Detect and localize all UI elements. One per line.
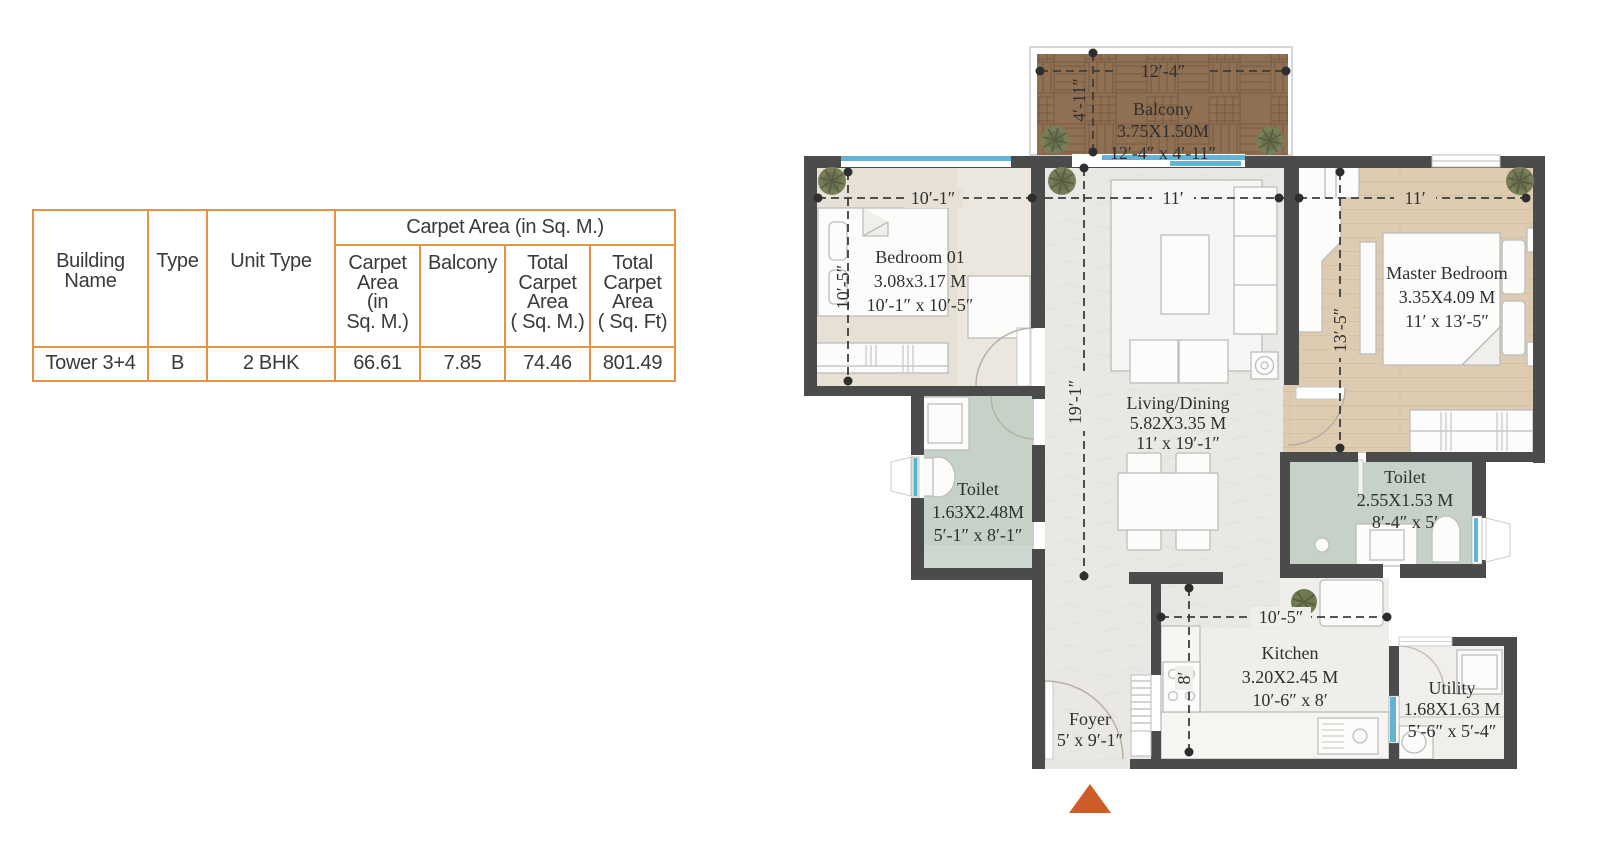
svg-text:3.20X2.45 M: 3.20X2.45 M <box>1242 667 1339 687</box>
svg-text:8′: 8′ <box>1174 671 1194 684</box>
svg-text:11′ x 13′-5″: 11′ x 13′-5″ <box>1405 311 1489 331</box>
svg-text:5′-1″ x 8′-1″: 5′-1″ x 8′-1″ <box>934 525 1023 545</box>
svg-text:3.75X1.50M: 3.75X1.50M <box>1117 121 1209 141</box>
svg-text:5′ x 9′-1″: 5′ x 9′-1″ <box>1057 730 1123 750</box>
svg-text:1.68X1.63 M: 1.68X1.63 M <box>1404 699 1501 719</box>
svg-text:5′-6″ x 5′-4″: 5′-6″ x 5′-4″ <box>1408 721 1497 741</box>
svg-text:2.55X1.53 M: 2.55X1.53 M <box>1357 490 1454 510</box>
svg-text:10′-1″: 10′-1″ <box>911 188 955 208</box>
svg-text:Foyer: Foyer <box>1069 709 1111 729</box>
svg-text:3.35X4.09 M: 3.35X4.09 M <box>1399 287 1496 307</box>
svg-text:10′-1″ x 10′-5″: 10′-1″ x 10′-5″ <box>867 295 974 315</box>
svg-text:13′-5″: 13′-5″ <box>1330 308 1350 352</box>
svg-text:Kitchen: Kitchen <box>1262 643 1319 663</box>
svg-text:4′-11″: 4′-11″ <box>1069 78 1089 122</box>
svg-text:Balcony: Balcony <box>1133 99 1193 119</box>
svg-text:Bedroom 01: Bedroom 01 <box>875 247 965 267</box>
svg-text:Toilet: Toilet <box>1384 467 1426 487</box>
svg-text:11′ x 19′-1″: 11′ x 19′-1″ <box>1136 433 1220 453</box>
svg-text:8′-4″ x 5′: 8′-4″ x 5′ <box>1372 512 1438 532</box>
svg-text:10′-6″ x 8′: 10′-6″ x 8′ <box>1252 690 1327 710</box>
svg-text:19′-1″: 19′-1″ <box>1065 380 1085 424</box>
svg-text:3.08x3.17 M: 3.08x3.17 M <box>874 271 967 291</box>
svg-text:1.63X2.48M: 1.63X2.48M <box>932 502 1024 522</box>
svg-text:Living/Dining: Living/Dining <box>1127 393 1230 413</box>
svg-text:Master Bedroom: Master Bedroom <box>1386 263 1507 283</box>
svg-text:11′: 11′ <box>1162 188 1183 208</box>
svg-text:Utility: Utility <box>1428 678 1475 698</box>
svg-text:12′-4″: 12′-4″ <box>1141 61 1185 81</box>
svg-text:12′-4″ x 4′-11″: 12′-4″ x 4′-11″ <box>1110 143 1216 163</box>
svg-text:Toilet: Toilet <box>957 479 999 499</box>
svg-text:10′-5″: 10′-5″ <box>833 265 853 309</box>
svg-text:5.82X3.35 M: 5.82X3.35 M <box>1130 413 1227 433</box>
svg-text:11′: 11′ <box>1404 188 1425 208</box>
svg-text:10′-5″: 10′-5″ <box>1259 607 1303 627</box>
